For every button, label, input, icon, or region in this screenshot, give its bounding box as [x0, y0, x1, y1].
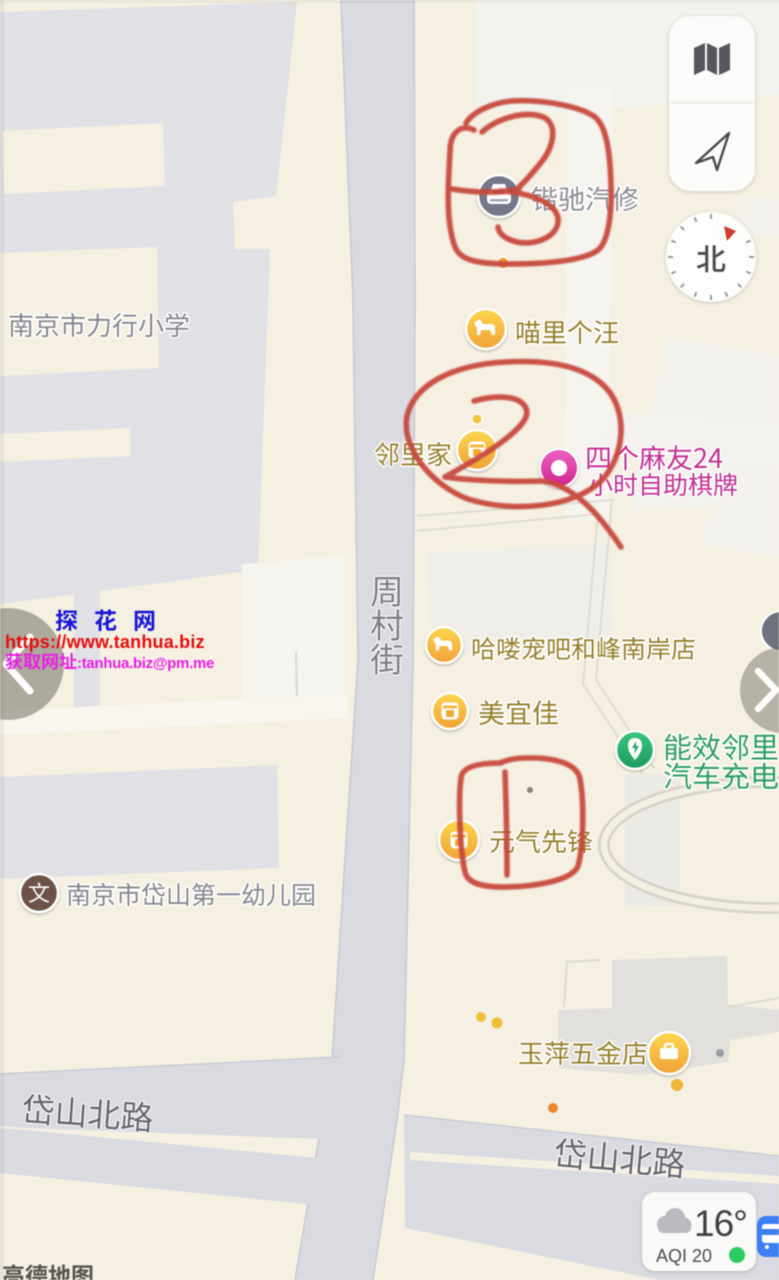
svg-text:16°: 16°	[694, 1203, 747, 1244]
svg-text:https://www.tanhua.biz: https://www.tanhua.biz	[5, 632, 205, 652]
svg-text::tanhua.biz@pm.me: :tanhua.biz@pm.me	[77, 655, 214, 672]
svg-text:AQI 20: AQI 20	[656, 1246, 712, 1266]
